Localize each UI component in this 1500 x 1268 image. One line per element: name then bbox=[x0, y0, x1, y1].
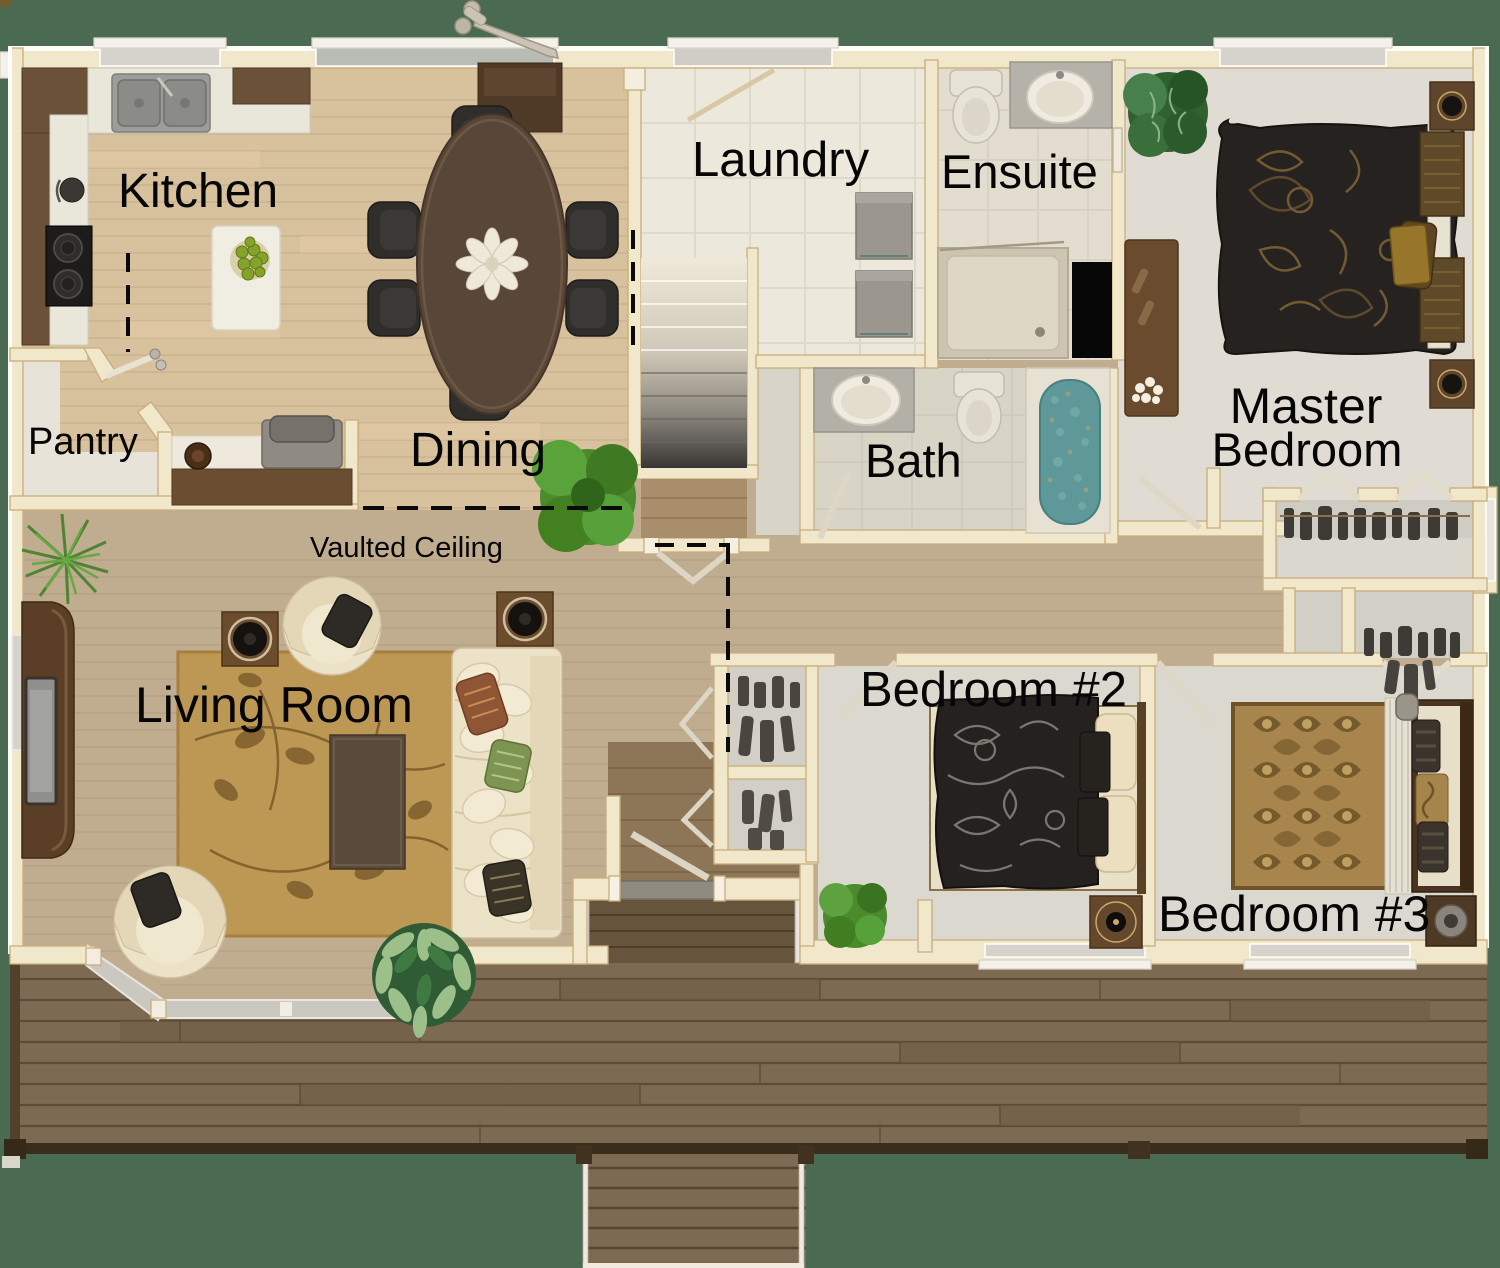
svg-text:Living Room: Living Room bbox=[135, 677, 413, 733]
svg-text:Laundry: Laundry bbox=[692, 133, 870, 187]
svg-text:Dining: Dining bbox=[410, 424, 546, 477]
svg-text:Vaulted Ceiling: Vaulted Ceiling bbox=[310, 532, 503, 564]
svg-text:Kitchen: Kitchen bbox=[118, 165, 278, 218]
svg-text:Bedroom #3: Bedroom #3 bbox=[1158, 886, 1430, 942]
svg-text:Pantry: Pantry bbox=[28, 421, 138, 463]
svg-text:Bath: Bath bbox=[865, 434, 962, 487]
svg-text:Ensuite: Ensuite bbox=[941, 145, 1098, 198]
svg-text:Bedroom #2: Bedroom #2 bbox=[860, 663, 1127, 717]
svg-text:Bedroom: Bedroom bbox=[1212, 423, 1403, 476]
